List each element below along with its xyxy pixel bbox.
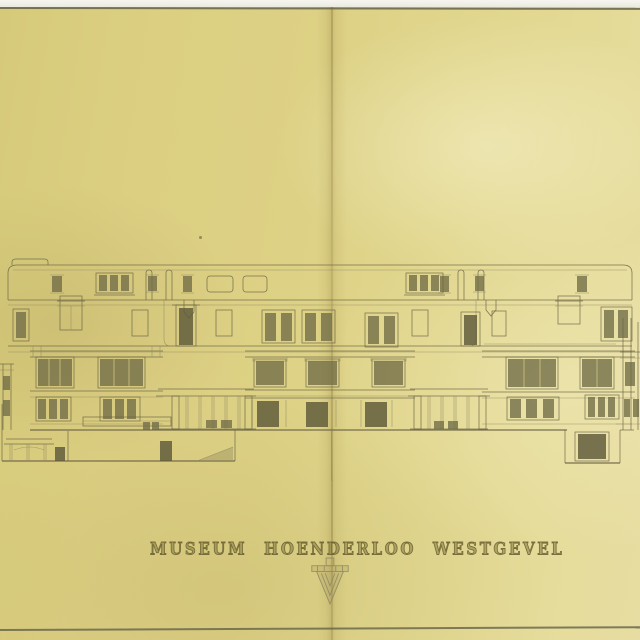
attic-storey xyxy=(8,259,632,305)
centre-pavilion xyxy=(245,351,415,427)
architect-monogram-icon xyxy=(307,556,353,608)
right-basement-terrace xyxy=(565,430,634,463)
chimney-blocks xyxy=(57,296,583,330)
right-porch-colonnade xyxy=(408,389,490,429)
drawing-photo: MUSEUM HOENDERLOO WESTGEVEL xyxy=(0,0,640,640)
right-pavilion xyxy=(482,344,635,424)
left-pavilion xyxy=(30,346,171,430)
